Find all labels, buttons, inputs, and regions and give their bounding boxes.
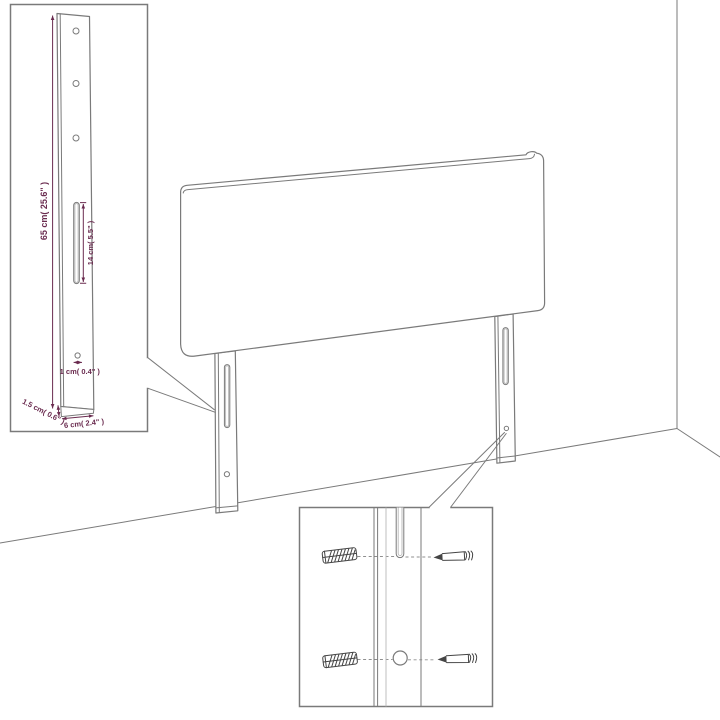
leg-detail-drawing — [57, 14, 94, 417]
height-dimension-label: 65 cm( 25.6" ) — [39, 182, 49, 240]
headboard-right-leg — [495, 314, 516, 463]
callout-left-leg — [148, 358, 215, 413]
hole-dimension-label: 1 cm( 0.4" ) — [60, 367, 101, 376]
leg-detail-inset: 65 cm( 25.6" ) 14 cm( 5.5" ) 1 cm( 0.4" … — [10, 4, 148, 432]
hardware-detail-inset — [299, 507, 493, 707]
closeup-slot — [396, 508, 404, 558]
diagram-canvas: 65 cm( 25.6" ) 14 cm( 5.5" ) 1 cm( 0.4" … — [0, 0, 720, 720]
headboard-main-view — [181, 152, 545, 513]
callout-right-leg-hole — [429, 433, 506, 508]
headboard-panel — [181, 152, 545, 357]
slot-dimension-label: 14 cm( 5.5" ) — [86, 220, 95, 265]
headboard-left-leg — [215, 351, 238, 513]
floor-line-right — [677, 429, 720, 458]
product-diagram: 65 cm( 25.6" ) 14 cm( 5.5" ) 1 cm( 0.4" … — [0, 0, 720, 720]
